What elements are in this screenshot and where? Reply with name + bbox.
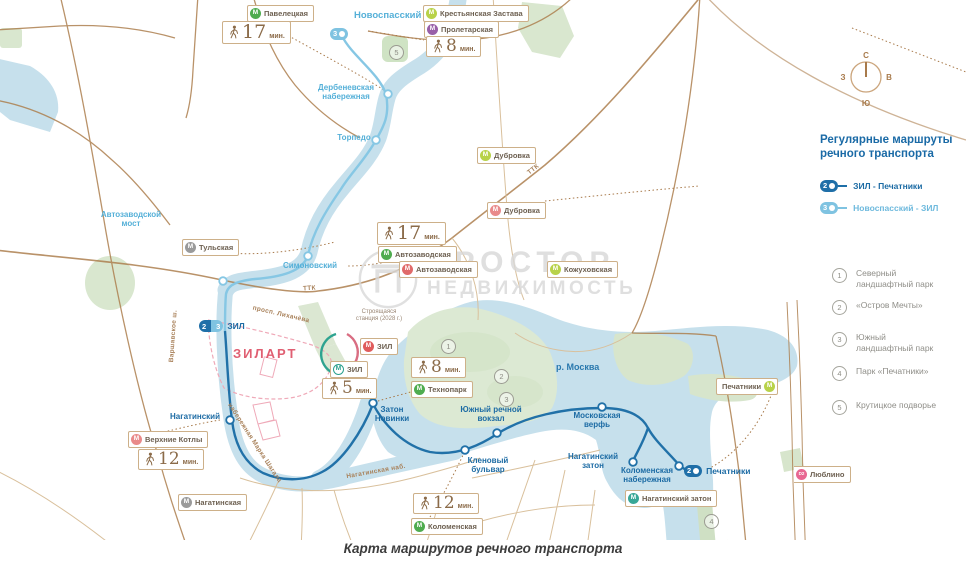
walk-time-tekhnopark: 8 мин. <box>411 357 466 378</box>
walking-icon <box>419 496 430 511</box>
metro-icon: М <box>250 8 261 19</box>
street-ttk-1: ТТК <box>303 285 316 293</box>
legend-route-2: 2 ЗИЛ - Печатники <box>820 180 922 192</box>
station-krestyanskaya-zastava[interactable]: М Крестьянская Застава <box>423 5 529 22</box>
metro-icon: М <box>181 497 192 508</box>
legend-route-3: 3 Новоспасский - ЗИЛ <box>820 202 938 214</box>
walking-icon <box>383 226 394 241</box>
metro-icon: М <box>185 242 196 253</box>
walking-icon <box>432 39 443 54</box>
walk-time-zil: 5 мин. <box>322 378 377 399</box>
pier-simonovsky[interactable]: Симоновский <box>278 261 342 270</box>
pier-derbenevskaya[interactable]: Дербеневская набережная <box>308 83 384 101</box>
station-dubrovka-pink[interactable]: М Дубровка <box>487 202 546 219</box>
walk-time-paveletskaya: 17 мин. <box>222 21 291 44</box>
metro-icon: М <box>402 264 413 275</box>
river-transport-map: С Ю З В ПРОСТОР НЕДВИЖИМОСТЬ ТТК ТТК про… <box>0 0 966 564</box>
station-paveletskaya[interactable]: М Павелецкая <box>247 5 314 22</box>
map-marker-4: 4 <box>704 514 719 529</box>
station-nagatinsky-zaton[interactable]: М Нагатинский затон <box>625 490 717 507</box>
metro-icon: М <box>414 384 425 395</box>
map-marker-2: 2 <box>494 369 509 384</box>
walk-time-verkhnie-kotly: 12 мин. <box>138 449 204 470</box>
construction-station-label: Строящаяся станция (2028 г.) <box>350 309 408 323</box>
station-tulskaya[interactable]: М Тульская <box>182 239 239 256</box>
station-kolomenskaya[interactable]: М Коломенская <box>411 518 483 535</box>
metro-icon: М <box>363 341 374 352</box>
compass-n: С <box>863 51 869 60</box>
pier-klenovy-bulvar[interactable]: Кленовый бульвар <box>458 456 518 474</box>
pier-torpedo[interactable]: Торпедо <box>334 133 374 142</box>
metro-icon: М <box>333 364 344 375</box>
metro-icon: М <box>764 381 775 392</box>
zilart-label: ЗИЛАРТ <box>233 346 297 361</box>
walk-time-kolomenskaya: 12 мин. <box>413 493 479 514</box>
map-marker-1: 1 <box>441 339 456 354</box>
zil-pier-label: ЗИЛ <box>227 321 244 331</box>
compass: С Ю З В <box>840 51 892 108</box>
walk-time-avtozavodskaya: 17 мин. <box>377 222 446 245</box>
pier-avtozavodsky-most[interactable]: Автозаводской мост <box>98 210 164 228</box>
metro-icon: М <box>131 434 142 445</box>
compass-e: В <box>886 73 892 82</box>
metro-icon: М <box>480 150 491 161</box>
legend-poi-4: 4 Парк «Печатники» <box>832 366 966 381</box>
novospassky-terminal-badge[interactable]: 3 <box>330 28 348 40</box>
station-verkhnie-kotly[interactable]: М Верхние Котлы <box>128 431 208 448</box>
station-nagatinskaya[interactable]: М Нагатинская <box>178 494 247 511</box>
pier-kolomenskaya-nab[interactable]: Коломенская набережная <box>610 466 684 484</box>
walking-icon <box>328 381 339 396</box>
pier-moskovskaya-verf[interactable]: Московская верфь <box>564 411 630 429</box>
station-zil-mcc[interactable]: М ЗИЛ <box>360 338 398 355</box>
d2-line-icon: D2 <box>796 469 807 480</box>
walk-time-proletarskaya: 8 мин. <box>426 36 481 57</box>
station-avtozavodskaya-mcc[interactable]: М Автозаводская <box>399 261 478 278</box>
compass-w: З <box>840 73 845 82</box>
station-zil-metro[interactable]: М ЗИЛ <box>330 361 368 378</box>
walking-icon <box>228 25 239 40</box>
map-caption: Карта маршрутов речного транспорта <box>0 541 966 556</box>
metro-icon: М <box>381 249 392 260</box>
compass-s: Ю <box>862 99 870 108</box>
legend-poi-2: 2 «Остров Мечты» <box>832 300 966 315</box>
legend-poi-1: 1 Северный ландшафтный парк <box>832 268 936 290</box>
pier-nagatinsky[interactable]: Нагатинский <box>156 412 220 421</box>
map-marker-5: 5 <box>389 45 404 60</box>
legend-title: Регулярные маршруты речного транспорта <box>820 133 955 162</box>
station-tekhnopark[interactable]: М Технопарк <box>411 381 473 398</box>
metro-icon: М <box>550 264 561 275</box>
walking-icon <box>144 452 155 467</box>
pechatniki-pier-label: Печатники <box>706 466 750 476</box>
river-name: р. Москва <box>556 362 599 372</box>
station-lyublino[interactable]: D2 Люблино <box>794 466 851 483</box>
pechatniki-terminal-badge[interactable]: 2 Печатники <box>684 465 750 477</box>
pier-zaton-novinki[interactable]: Затон Новинки <box>368 405 416 423</box>
station-pechatniki[interactable]: М Печатники <box>716 378 778 395</box>
pier-yuzhny-vokzal[interactable]: Южный речной вокзал <box>452 405 530 423</box>
metro-icon: М <box>628 493 639 504</box>
metro-icon: М <box>426 8 437 19</box>
legend-poi-5: 5 Крутицкое подворье <box>832 400 966 415</box>
station-kozhukhovskaya[interactable]: М Кожуховская <box>547 261 618 278</box>
zil-terminal-badge[interactable]: 2 3 ЗИЛ <box>199 320 245 332</box>
legend-poi-3: 3 Южный ландшафтный парк <box>832 332 936 354</box>
walking-icon <box>417 360 428 375</box>
watermark-line2: НЕДВИЖИМОСТЬ <box>427 279 636 299</box>
pier-novospassky[interactable]: Новоспасский <box>354 11 421 22</box>
metro-icon: М <box>490 205 501 216</box>
metro-icon: М <box>414 521 425 532</box>
station-dubrovka-lime[interactable]: М Дубровка <box>477 147 536 164</box>
metro-icon: М <box>427 24 438 35</box>
river-patch <box>0 58 58 132</box>
map-marker-3: 3 <box>499 392 514 407</box>
